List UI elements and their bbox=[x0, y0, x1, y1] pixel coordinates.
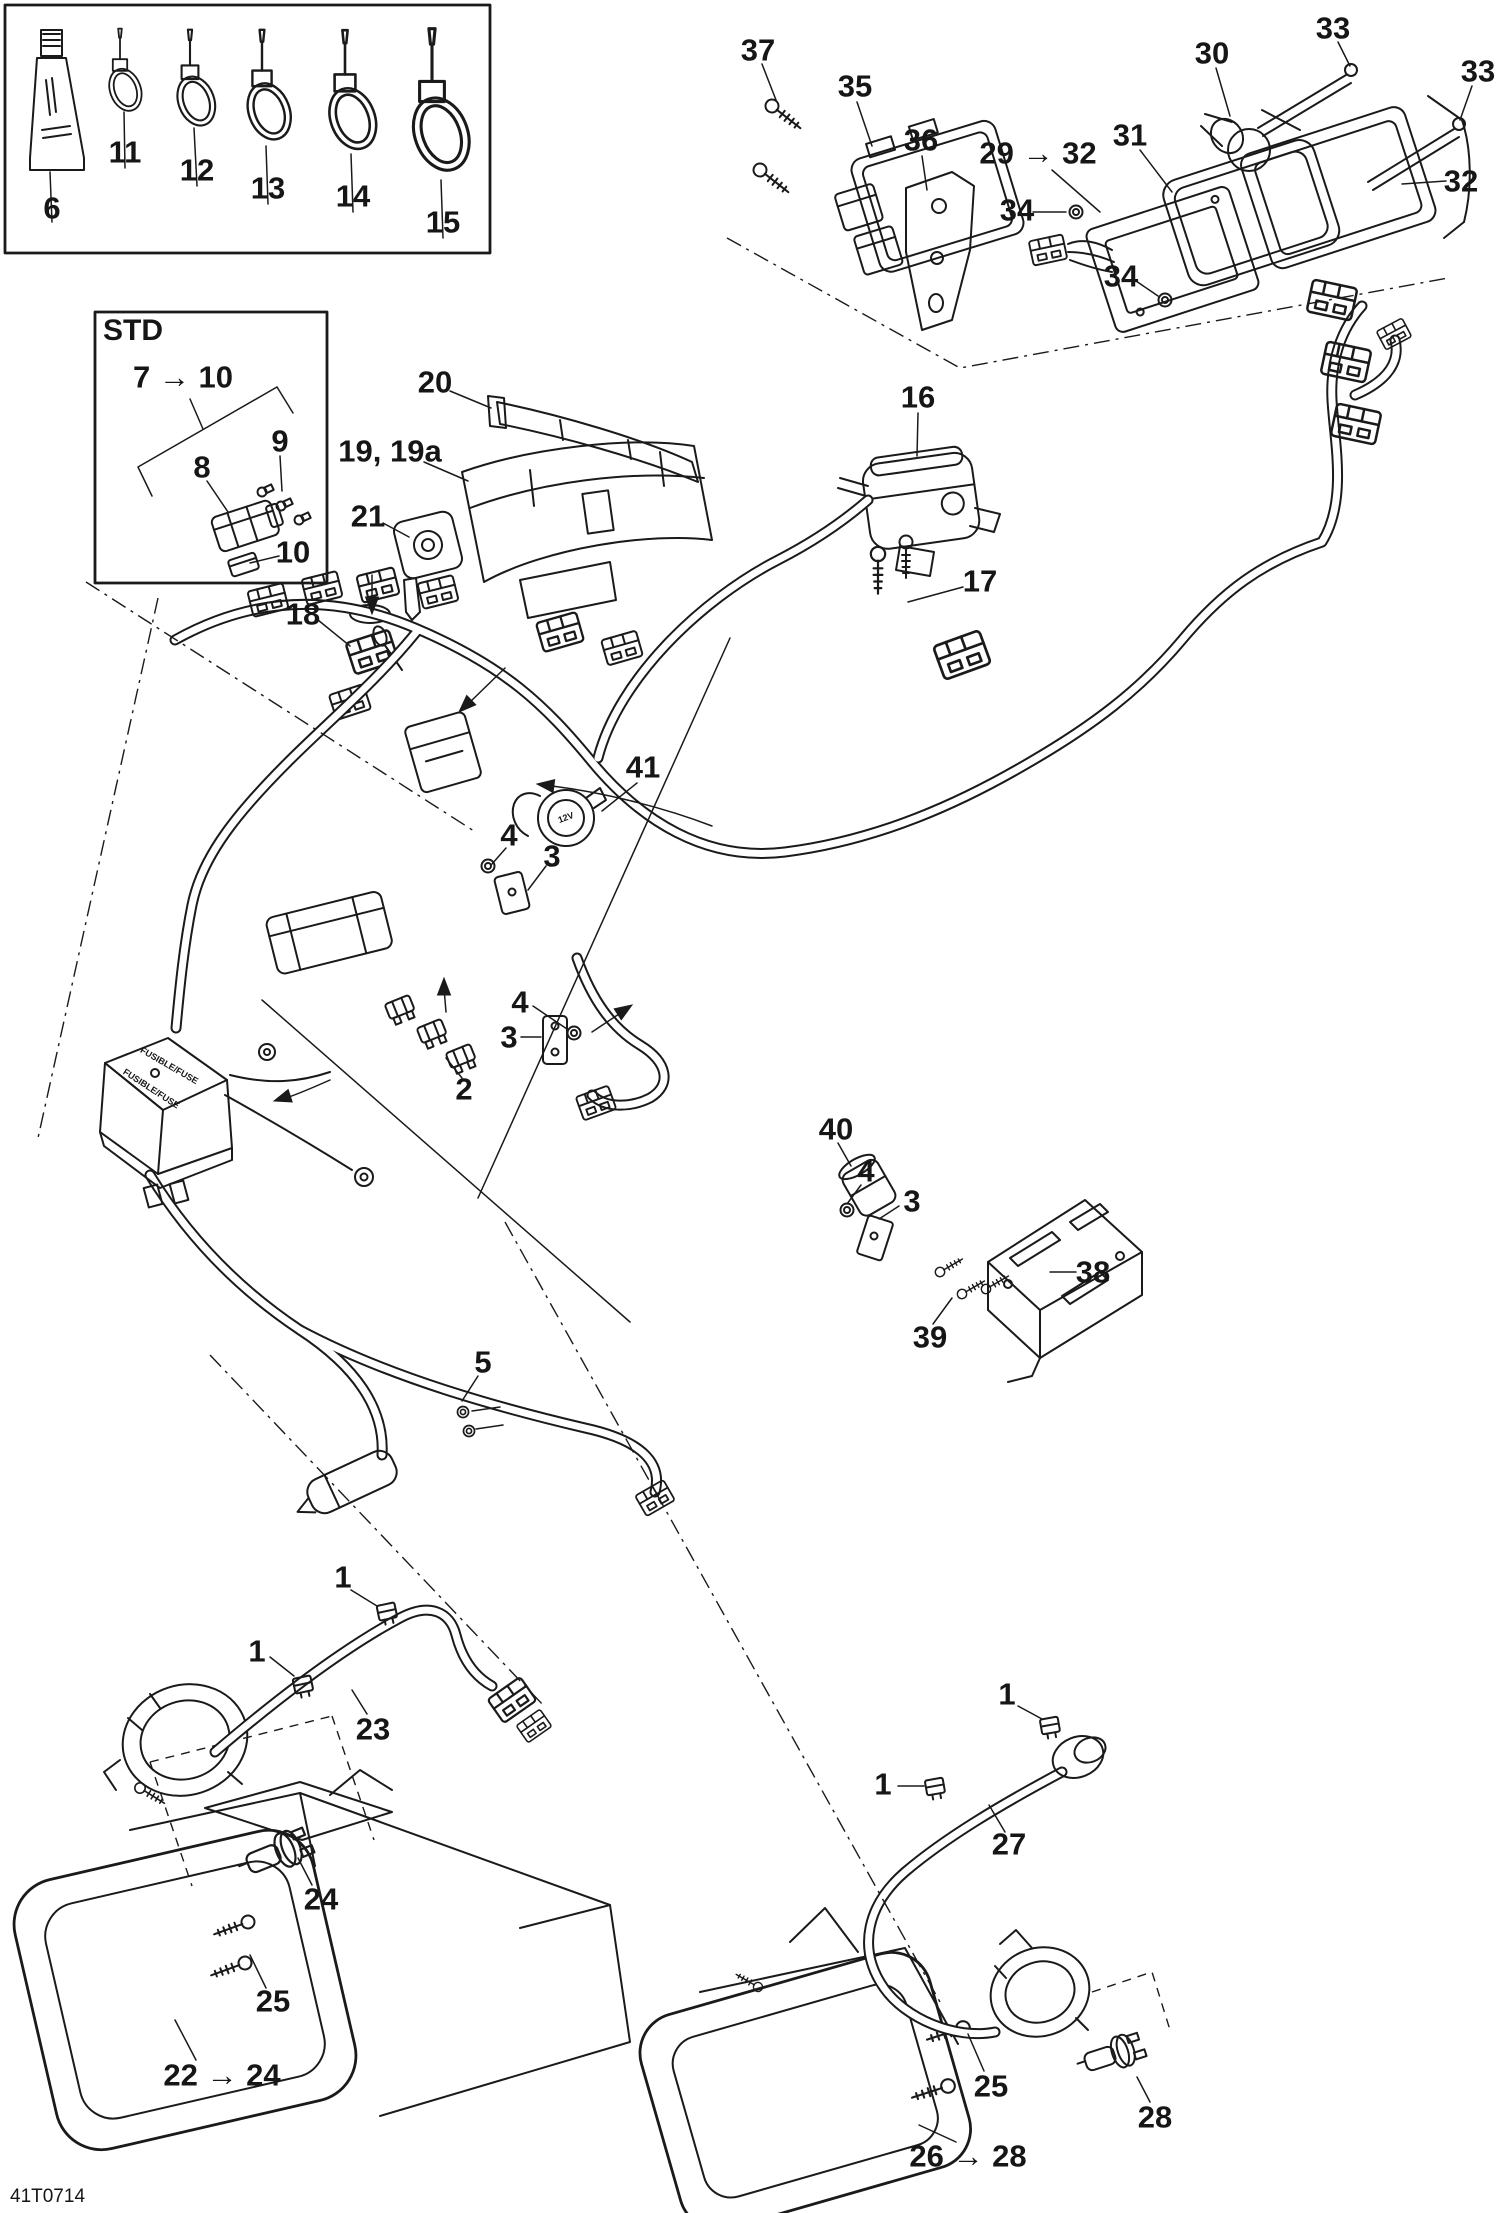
drawing-code: 41T0714 bbox=[10, 2186, 85, 2208]
callout-10: 10 bbox=[276, 537, 310, 568]
callout-layer: 6111213141537353629 → 3231303333323434ST… bbox=[0, 0, 1500, 2213]
callout-41: 41 bbox=[626, 752, 660, 783]
callout-1d: 1 bbox=[874, 1769, 891, 1800]
callout-7-10: 7 → 10 bbox=[133, 362, 233, 393]
callout-34b: 34 bbox=[1104, 261, 1138, 292]
callout-26-28: 26 → 28 bbox=[909, 2141, 1026, 2172]
callout-33b: 33 bbox=[1461, 56, 1495, 87]
callout-1b: 1 bbox=[248, 1636, 265, 1667]
callout-1c: 1 bbox=[998, 1679, 1015, 1710]
callout-35: 35 bbox=[838, 71, 872, 102]
callout-3a: 3 bbox=[543, 841, 560, 872]
callout-3c: 3 bbox=[903, 1186, 920, 1217]
callout-28: 28 bbox=[1138, 2102, 1172, 2133]
callout-15: 15 bbox=[426, 207, 460, 238]
callout-38: 38 bbox=[1076, 1257, 1110, 1288]
callout-33a: 33 bbox=[1316, 13, 1350, 44]
callout-25a: 25 bbox=[256, 1986, 290, 2017]
callout-37: 37 bbox=[741, 35, 775, 66]
callout-12: 12 bbox=[180, 155, 214, 186]
callout-3b: 3 bbox=[500, 1022, 517, 1053]
callout-20: 20 bbox=[418, 367, 452, 398]
callout-21: 21 bbox=[351, 501, 385, 532]
callout-31: 31 bbox=[1113, 120, 1147, 151]
callout-25b: 25 bbox=[974, 2071, 1008, 2102]
callout-40: 40 bbox=[819, 1114, 853, 1145]
callout-16: 16 bbox=[901, 382, 935, 413]
callout-13: 13 bbox=[251, 173, 285, 204]
callout-6: 6 bbox=[43, 193, 60, 224]
callout-17: 17 bbox=[963, 566, 997, 597]
callout-30: 30 bbox=[1195, 38, 1229, 69]
callout-9: 9 bbox=[271, 426, 288, 457]
callout-39: 39 bbox=[913, 1322, 947, 1353]
callout-22-24: 22 → 24 bbox=[163, 2060, 280, 2091]
callout-32: 32 bbox=[1444, 166, 1478, 197]
callout-27: 27 bbox=[992, 1829, 1026, 1860]
callout-18: 18 bbox=[286, 599, 320, 630]
callout-4a: 4 bbox=[500, 820, 517, 851]
callout-std: STD bbox=[103, 316, 163, 346]
callout-2: 2 bbox=[455, 1074, 472, 1105]
socket-12v-marking: 12V bbox=[557, 811, 575, 825]
callout-24: 24 bbox=[304, 1884, 338, 1915]
callout-1a: 1 bbox=[334, 1562, 351, 1593]
callout-11: 11 bbox=[109, 137, 142, 168]
callout-14: 14 bbox=[336, 181, 370, 212]
callout-5: 5 bbox=[474, 1347, 491, 1378]
callout-36: 36 bbox=[904, 125, 938, 156]
callout-23: 23 bbox=[356, 1714, 390, 1745]
callout-4c: 4 bbox=[857, 1156, 874, 1187]
callout-8: 8 bbox=[193, 452, 210, 483]
callout-19-19a: 19, 19a bbox=[338, 436, 441, 467]
callout-29-32: 29 → 32 bbox=[979, 138, 1096, 169]
parts-diagram-page: 6111213141537353629 → 3231303333323434ST… bbox=[0, 0, 1500, 2213]
callout-4b: 4 bbox=[511, 987, 528, 1018]
fusebox-text-2: FUSIBLE/FUSE bbox=[121, 1068, 180, 1111]
callout-34a: 34 bbox=[1000, 195, 1034, 226]
